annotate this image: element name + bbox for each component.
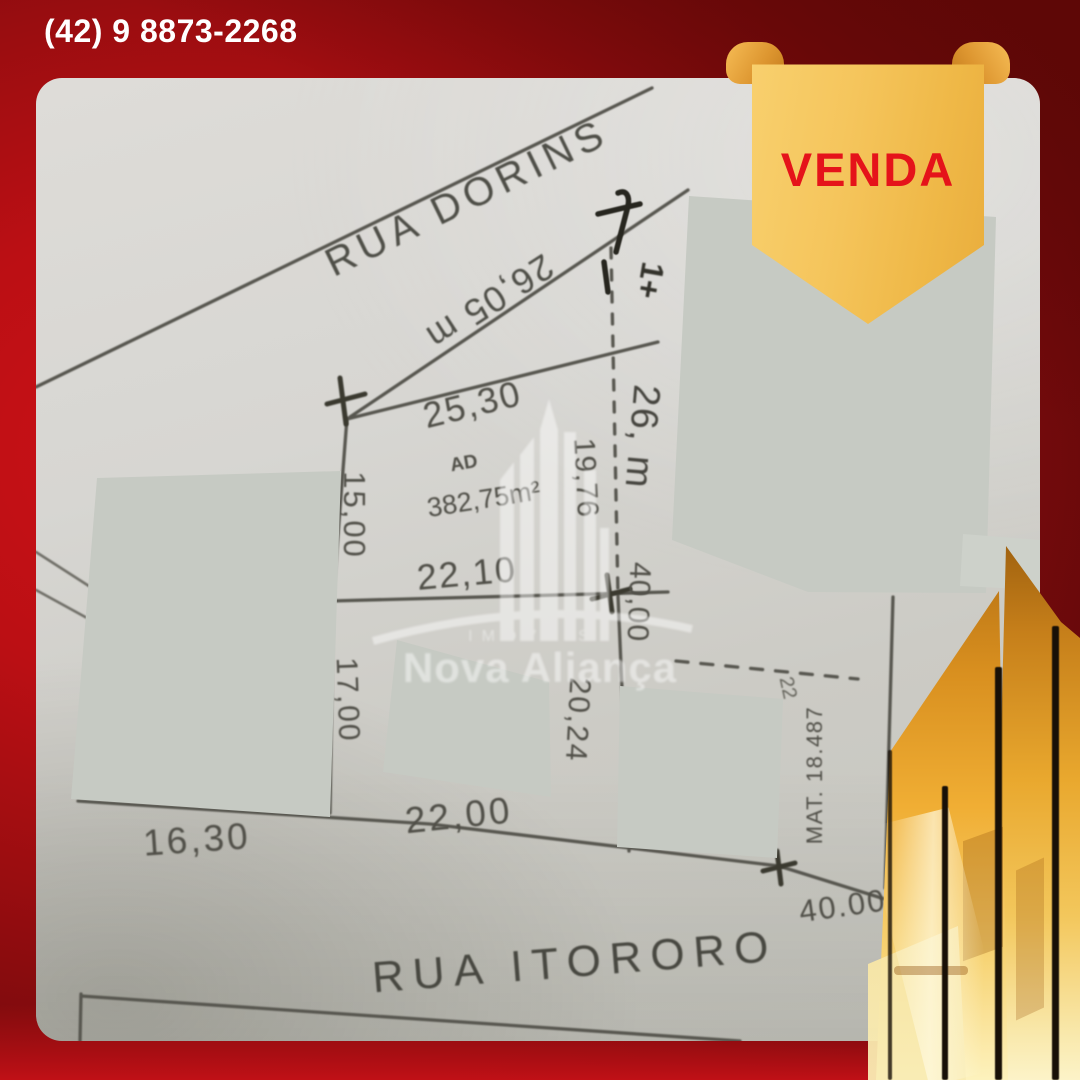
- watermark-nova-alianca: Nova Aliança: [403, 644, 677, 691]
- sale-ribbon: VENDA: [752, 42, 984, 324]
- dim-right-lower: 40,00: [621, 561, 657, 642]
- dim-left-lower: 17,00: [330, 657, 366, 743]
- sale-ribbon-label: VENDA: [752, 142, 984, 197]
- tower-mullion: [888, 750, 892, 1080]
- dim-left-upper: 15,00: [337, 471, 372, 559]
- area-label: AD: [449, 451, 480, 476]
- tower-mullion: [995, 667, 1002, 1080]
- tower-silhouette: [894, 966, 968, 975]
- dim-top: 25,30: [419, 372, 526, 436]
- phone-number: (42) 9 8873-2268: [44, 13, 298, 50]
- ad-canvas: RUA DORINS 26,05 m 25,30 15,00 22,10 19,…: [0, 0, 1080, 1080]
- note-22: 22: [775, 675, 801, 701]
- redaction-box-right: [617, 686, 783, 858]
- redaction-box-left: [71, 471, 341, 817]
- street-name-itororo: RUA ITORORO: [370, 922, 779, 1003]
- dim-bottom-left: 16,30: [142, 815, 252, 863]
- gold-towers-graphic: [868, 534, 1080, 1080]
- watermark-imoveis: IMÓVEIS: [468, 626, 598, 645]
- handwritten-note: 1+: [630, 259, 672, 301]
- street-frontage-note: 26,05 m: [418, 246, 561, 359]
- dim-right-outer: 26, m: [616, 383, 667, 491]
- tower-mullion: [942, 786, 948, 1080]
- buildings-icon: [500, 399, 609, 641]
- tower-reflection: [1016, 857, 1044, 1020]
- tower-mullion: [1052, 626, 1059, 1080]
- street-name-dorins: RUA DORINS: [318, 110, 615, 285]
- registry-number: MAT. 18.487: [802, 706, 827, 844]
